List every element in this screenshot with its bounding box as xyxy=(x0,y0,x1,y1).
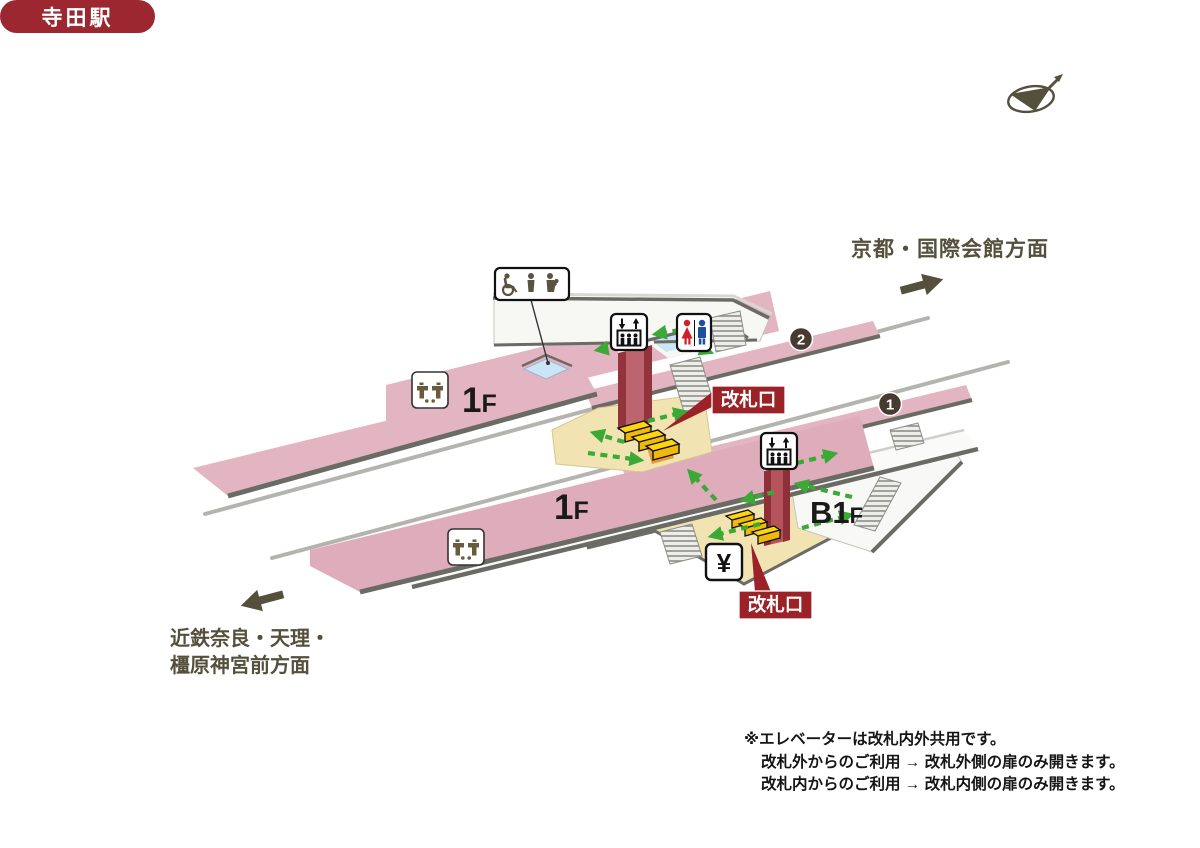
compass-icon xyxy=(1006,74,1063,115)
elevator-icon-upper xyxy=(611,314,647,350)
track-1-number-label: 1 xyxy=(886,397,894,414)
ticket-machine-icon: ¥ xyxy=(706,544,742,580)
station-map-svg: ¥ 改札口 改札口 2 1 1F 1F B1F xyxy=(0,0,1200,848)
arrow-southwest-icon xyxy=(238,584,286,617)
water-fountain-icon-lower xyxy=(448,529,484,565)
stairs-concourse-east xyxy=(710,311,746,352)
water-fountain-icon-upper xyxy=(412,372,448,408)
yen-symbol: ¥ xyxy=(717,548,732,578)
elevator-shaft-upper xyxy=(618,344,652,430)
track-2-number-label: 2 xyxy=(797,332,805,349)
station-map-page: 寺田駅 京都・国際会館方面 近鉄奈良・天理・ 橿原神宮前方面 ※エレベーターは改… xyxy=(0,0,1200,848)
concourse-south-wall-west xyxy=(494,343,612,345)
track-1-number: 1 xyxy=(879,393,902,416)
gate-badge-upper-label: 改札口 xyxy=(721,389,777,410)
restroom-icon xyxy=(677,314,711,351)
track-2-number: 2 xyxy=(790,328,813,351)
arrow-northeast-icon xyxy=(898,269,946,302)
person-icon xyxy=(528,273,535,292)
gate-badge-lower-label: 改札口 xyxy=(748,594,804,615)
elevator-icon-lower xyxy=(761,433,797,469)
